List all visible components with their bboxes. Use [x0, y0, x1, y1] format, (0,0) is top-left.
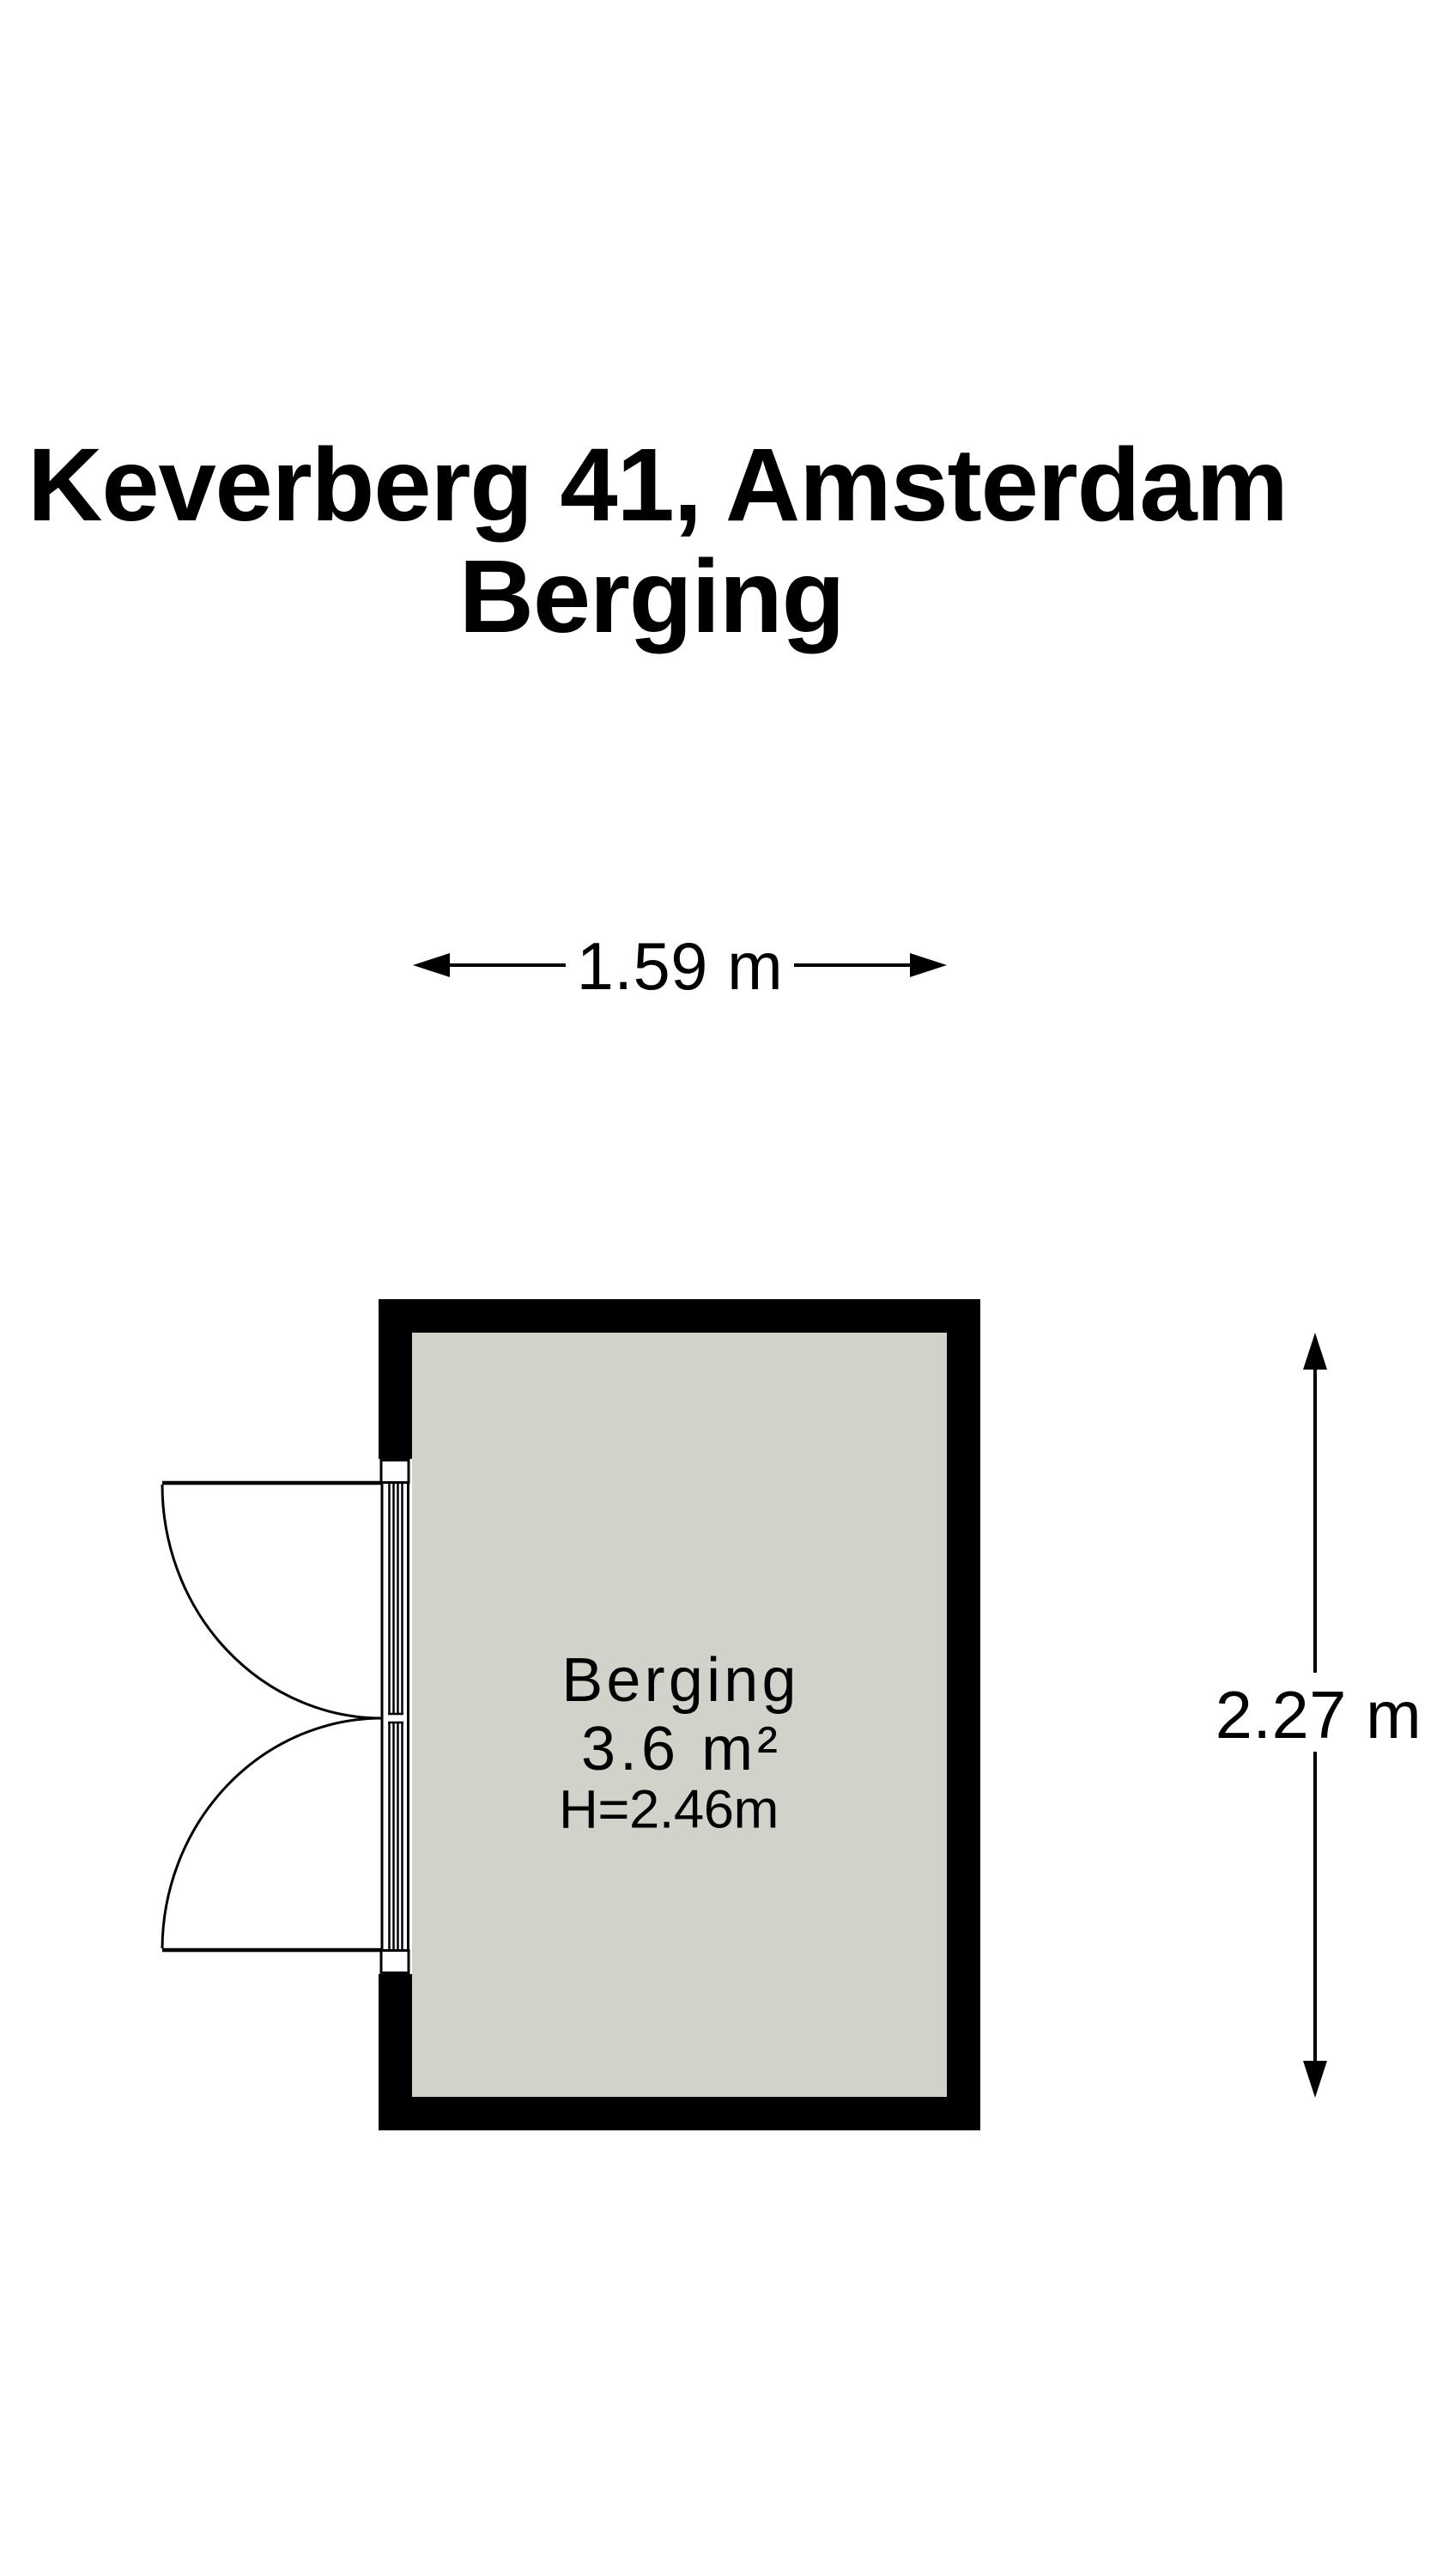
svg-text:3.6 m²: 3.6 m²	[581, 1715, 782, 1783]
svg-text:Berging: Berging	[561, 1646, 800, 1715]
svg-text:Keverberg 41, Amsterdam: Keverberg 41, Amsterdam	[27, 426, 1288, 543]
svg-text:Berging: Berging	[459, 538, 845, 654]
svg-text:H=2.46m: H=2.46m	[559, 1780, 779, 1840]
svg-text:2.27 m: 2.27 m	[1216, 1679, 1422, 1753]
svg-text:1.59 m: 1.59 m	[577, 930, 784, 1004]
